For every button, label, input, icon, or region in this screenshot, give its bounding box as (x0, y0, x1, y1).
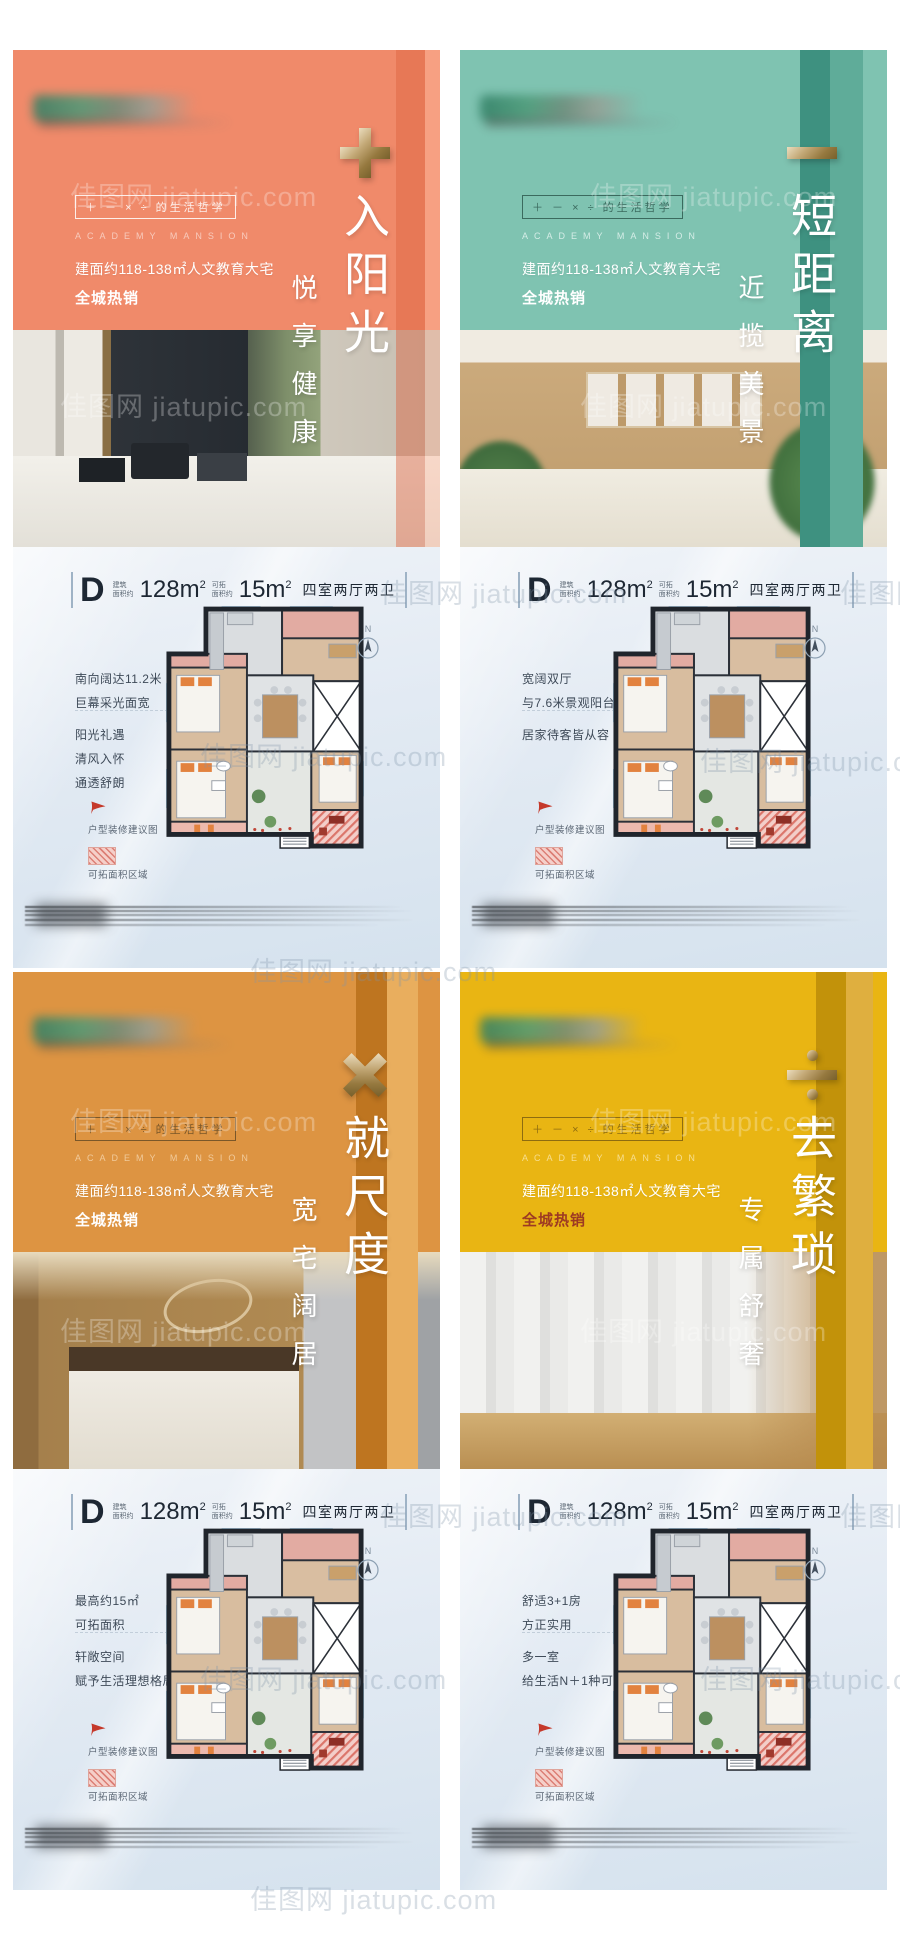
legend-area-label: 可拓面积区域 (88, 1789, 158, 1803)
spec-divider-bar (852, 1494, 854, 1530)
floorplan-panel: D 建筑面积约 128m2 可拓面积约 15m2 四室两厅两卫 南向阔达11.2… (13, 547, 440, 968)
brand-english-name: ACADEMY MANSION (522, 231, 701, 241)
area-description: 建面约118-138㎡人文教育大宅 (522, 1181, 721, 1201)
floor-plan (612, 605, 812, 854)
philosophy-tagline-box: ＋ － × ÷ 的生活哲学 (75, 1117, 236, 1141)
plan-legend: 户型装修建议图 可拓面积区域 (88, 800, 158, 881)
photo-shape-b (131, 443, 189, 479)
north-compass-icon: N (802, 1545, 828, 1585)
area-description: 建面约118-138㎡人文教育大宅 (75, 1181, 274, 1201)
feature-line: 南向阔达11.2米 (75, 667, 162, 691)
vertical-headline: 去繁琐 (778, 1114, 844, 1288)
feature-line: 多一室 (522, 1645, 626, 1669)
floorplan-panel: D 建筑面积约 128m2 可拓面积约 15m2 四室两厅两卫 舒适3+1房方正… (460, 1469, 887, 1890)
expandable-area-value: 15m2 (239, 1500, 292, 1524)
developer-logo-blurred (480, 95, 655, 121)
vertical-subline: 宽宅阔居 (285, 1196, 322, 1388)
plan-features-top: 最高约15㎡可拓面积 (75, 1589, 139, 1637)
hot-sale-label: 全城热销 (522, 287, 586, 308)
plan-features-top: 南向阔达11.2米巨幕采光面宽 (75, 667, 162, 715)
feature-line: 赋予生活理想格局 (75, 1669, 175, 1693)
expandable-area-swatch (535, 847, 563, 865)
flag-icon (88, 1722, 108, 1737)
plan-features-top: 舒适3+1房方正实用 (522, 1589, 581, 1637)
minus-icon (787, 128, 837, 178)
hot-sale-label: 全城热销 (75, 287, 139, 308)
developer-logo-blurred (480, 1017, 655, 1043)
hot-sale-label: 全城热销 (75, 1209, 139, 1230)
plan-features-bottom: 居家待客皆从容 (522, 723, 610, 747)
svg-text:N: N (812, 1546, 819, 1556)
feature-line: 舒适3+1房 (522, 1589, 581, 1613)
feature-line: 巨幕采光面宽 (75, 691, 162, 715)
legend-area-label: 可拓面积区域 (535, 867, 605, 881)
room-configuration: 四室两厅两卫 (303, 580, 396, 600)
philosophy-tagline-box: ＋ － × ÷ 的生活哲学 (522, 1117, 683, 1141)
expandable-area-label: 可拓面积约 (659, 1503, 680, 1521)
built-area-value: 128m2 (140, 1500, 206, 1524)
built-area-label: 建筑面积约 (560, 581, 581, 599)
feature-line: 方正实用 (522, 1613, 581, 1637)
unit-letter: D (80, 1495, 105, 1529)
vertical-subline: 近揽美景 (732, 274, 769, 466)
brand-english-name: ACADEMY MANSION (75, 1153, 254, 1163)
room-configuration: 四室两厅两卫 (303, 1502, 396, 1522)
speed-lines-decoration (25, 1824, 427, 1852)
floorplan-panel: D 建筑面积约 128m2 可拓面积约 15m2 四室两厅两卫 最高约15㎡可拓… (13, 1469, 440, 1890)
accent-stripe-light (846, 972, 873, 1469)
floorplan-panel: D 建筑面积约 128m2 可拓面积约 15m2 四室两厅两卫 宽阔双厅与7.6… (460, 547, 887, 968)
expandable-area-label: 可拓面积约 (212, 581, 233, 599)
poster-divide: ＋ － × ÷ 的生活哲学 ACADEMY MANSION 建面约118-138… (460, 972, 887, 1890)
plan-legend: 户型装修建议图 可拓面积区域 (535, 800, 605, 881)
legend-flag-label: 户型装修建议图 (535, 1744, 605, 1758)
poster-plus: ＋ － × ÷ 的生活哲学 ACADEMY MANSION 建面约118-138… (13, 50, 440, 968)
feature-line: 最高约15㎡ (75, 1589, 139, 1613)
spec-divider-bar (852, 572, 854, 608)
feature-line: 居家待客皆从容 (522, 723, 610, 747)
hot-sale-label: 全城热销 (522, 1209, 586, 1230)
plan-features-bottom: 阳光礼遇清风入怀通透舒朗 (75, 723, 125, 795)
feature-line: 清风入怀 (75, 747, 125, 771)
floor-plan (165, 1527, 365, 1776)
flag-icon (535, 800, 555, 815)
accent-stripe-light (425, 50, 440, 547)
expandable-area-swatch (88, 1769, 116, 1787)
spec-divider-bar (71, 1494, 73, 1530)
expandable-area-label: 可拓面积约 (659, 581, 680, 599)
philosophy-tagline-box: ＋ － × ÷ 的生活哲学 (522, 195, 683, 219)
floor-plan (612, 1527, 812, 1776)
plus-icon (340, 128, 390, 178)
plan-features-bottom: 轩敞空间赋予生活理想格局 (75, 1645, 175, 1693)
speed-lines-decoration (25, 902, 427, 930)
north-compass-icon: N (355, 623, 381, 663)
built-area-value: 128m2 (587, 1500, 653, 1524)
brand-english-name: ACADEMY MANSION (75, 231, 254, 241)
photo-shape-a (13, 456, 440, 547)
spec-divider-bar (518, 1494, 520, 1530)
poster-times: ＋ － × ÷ 的生活哲学 ACADEMY MANSION 建面约118-138… (13, 972, 440, 1890)
spec-divider-bar (71, 572, 73, 608)
spec-divider-bar (405, 1494, 407, 1530)
spec-divider-bar (518, 572, 520, 608)
legend-area-label: 可拓面积区域 (88, 867, 158, 881)
speed-lines-decoration (472, 1824, 874, 1852)
unit-letter: D (527, 573, 552, 607)
plan-legend: 户型装修建议图 可拓面积区域 (88, 1722, 158, 1803)
area-description: 建面约118-138㎡人文教育大宅 (522, 259, 721, 279)
poster-minus: ＋ － × ÷ 的生活哲学 ACADEMY MANSION 建面约118-138… (460, 50, 887, 968)
area-description: 建面约118-138㎡人文教育大宅 (75, 259, 274, 279)
built-area-label: 建筑面积约 (113, 1503, 134, 1521)
built-area-label: 建筑面积约 (560, 1503, 581, 1521)
north-compass-icon: N (802, 623, 828, 663)
legend-flag-label: 户型装修建议图 (88, 1744, 158, 1758)
expandable-area-swatch (88, 847, 116, 865)
poster-sheet: ＋ － × ÷ 的生活哲学 ACADEMY MANSION 建面约118-138… (0, 0, 900, 1942)
accent-stripe-dark (396, 50, 425, 547)
feature-line: 通透舒朗 (75, 771, 125, 795)
photo-shape-b (159, 1271, 258, 1341)
north-compass-icon: N (355, 1545, 381, 1585)
expandable-area-swatch (535, 1769, 563, 1787)
speed-lines-decoration (472, 902, 874, 930)
developer-logo-blurred (33, 1017, 208, 1043)
floor-plan (165, 605, 365, 854)
expandable-area-value: 15m2 (686, 1500, 739, 1524)
divide-icon (787, 1050, 837, 1100)
room-configuration: 四室两厅两卫 (750, 1502, 843, 1522)
developer-logo-blurred (33, 95, 208, 121)
svg-text:N: N (812, 624, 819, 634)
legend-area-label: 可拓面积区域 (535, 1789, 605, 1803)
plan-legend: 户型装修建议图 可拓面积区域 (535, 1722, 605, 1803)
plan-features-bottom: 多一室给生活N＋1种可能 (522, 1645, 626, 1693)
feature-line: 阳光礼遇 (75, 723, 125, 747)
vertical-subline: 悦享健康 (285, 274, 322, 466)
photo-shape-a (69, 1371, 299, 1469)
legend-flag-label: 户型装修建议图 (88, 822, 158, 836)
brand-english-name: ACADEMY MANSION (522, 1153, 701, 1163)
built-area-value: 128m2 (140, 578, 206, 602)
vertical-subline: 专属舒奢 (732, 1196, 769, 1388)
expandable-area-label: 可拓面积约 (212, 1503, 233, 1521)
room-configuration: 四室两厅两卫 (750, 580, 843, 600)
feature-line: 轩敞空间 (75, 1645, 175, 1669)
expandable-area-value: 15m2 (686, 578, 739, 602)
svg-text:N: N (365, 624, 372, 634)
vertical-headline: 就尺度 (331, 1114, 397, 1288)
built-area-label: 建筑面积约 (113, 581, 134, 599)
unit-letter: D (80, 573, 105, 607)
svg-text:N: N (365, 1546, 372, 1556)
philosophy-tagline-box: ＋ － × ÷ 的生活哲学 (75, 195, 236, 219)
spec-divider-bar (405, 572, 407, 608)
vertical-headline: 短距离 (778, 192, 844, 366)
flag-icon (535, 1722, 555, 1737)
feature-line: 可拓面积 (75, 1613, 139, 1637)
unit-letter: D (527, 1495, 552, 1529)
legend-flag-label: 户型装修建议图 (535, 822, 605, 836)
feature-line: 给生活N＋1种可能 (522, 1669, 626, 1693)
flag-icon (88, 800, 108, 815)
built-area-value: 128m2 (587, 578, 653, 602)
expandable-area-value: 15m2 (239, 578, 292, 602)
vertical-headline: 入阳光 (331, 192, 397, 366)
